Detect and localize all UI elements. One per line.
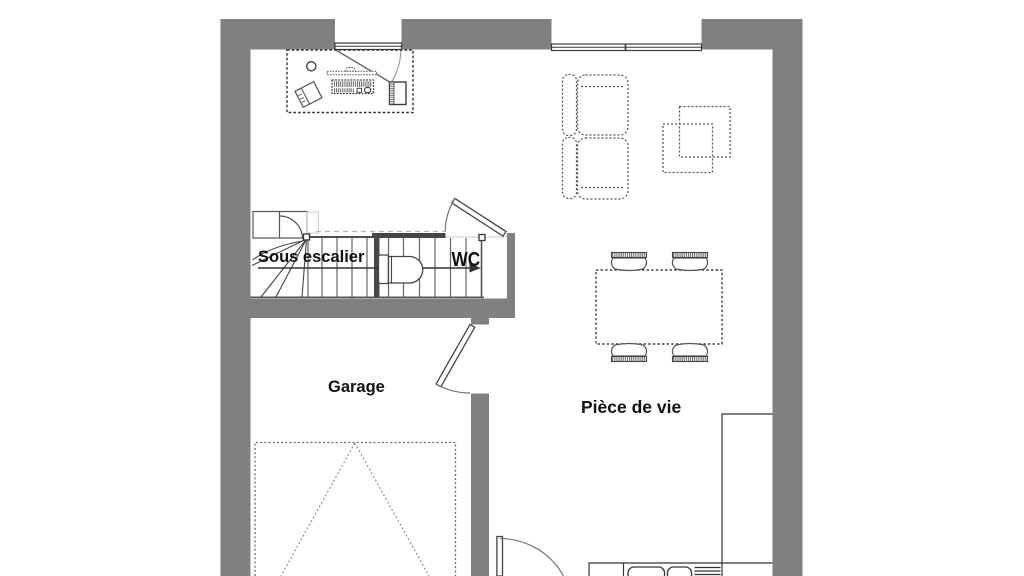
svg-text:Garage: Garage <box>328 378 385 396</box>
svg-text:WC: WC <box>452 248 481 271</box>
svg-text:Pièce de vie: Pièce de vie <box>581 397 681 417</box>
svg-text:Sous escalier: Sous escalier <box>258 248 365 266</box>
